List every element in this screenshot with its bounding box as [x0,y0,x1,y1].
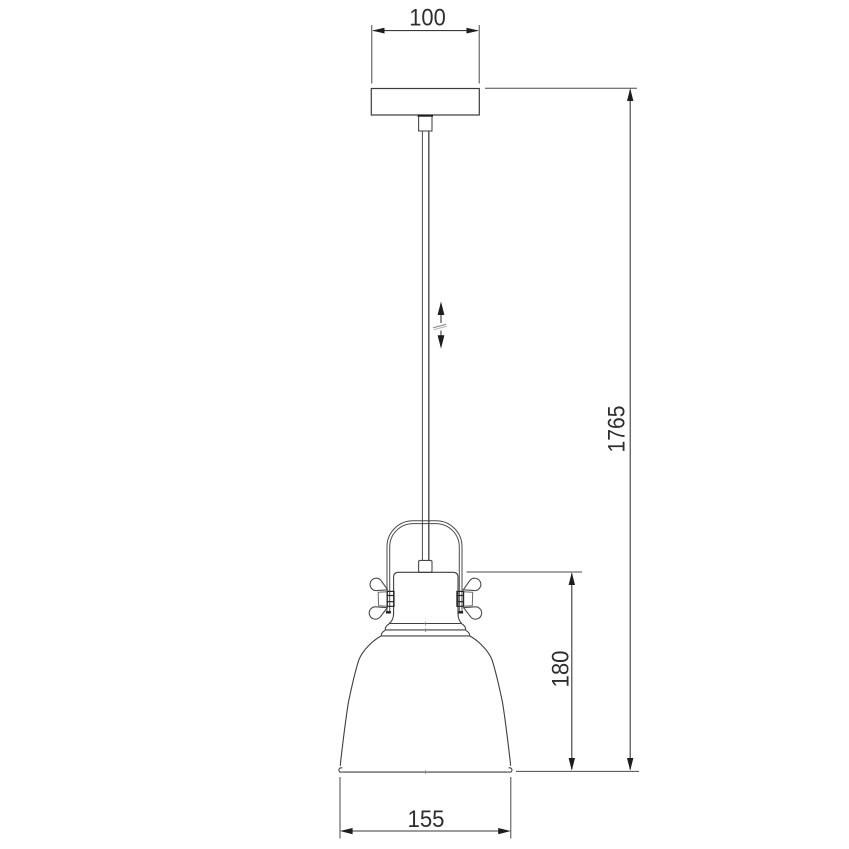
svg-text:155: 155 [408,807,445,833]
svg-text:180: 180 [549,651,575,688]
svg-text:100: 100 [409,6,446,32]
svg-text:1765: 1765 [605,406,631,453]
